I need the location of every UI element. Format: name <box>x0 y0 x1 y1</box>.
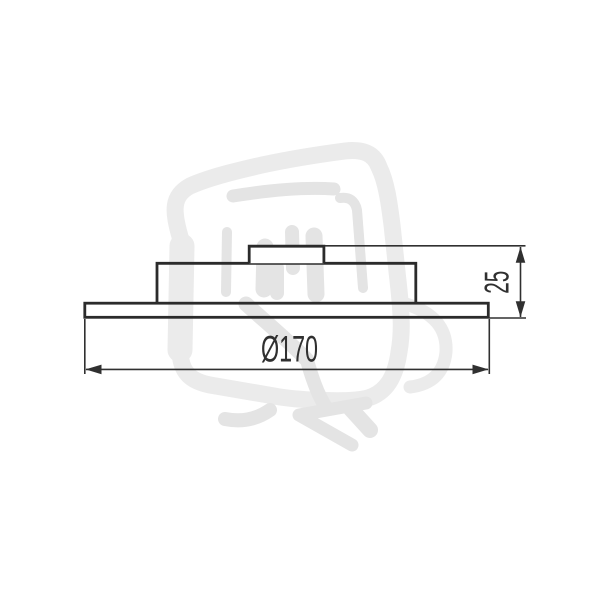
svg-text:25: 25 <box>479 271 517 294</box>
svg-text:Ø170: Ø170 <box>261 329 318 370</box>
